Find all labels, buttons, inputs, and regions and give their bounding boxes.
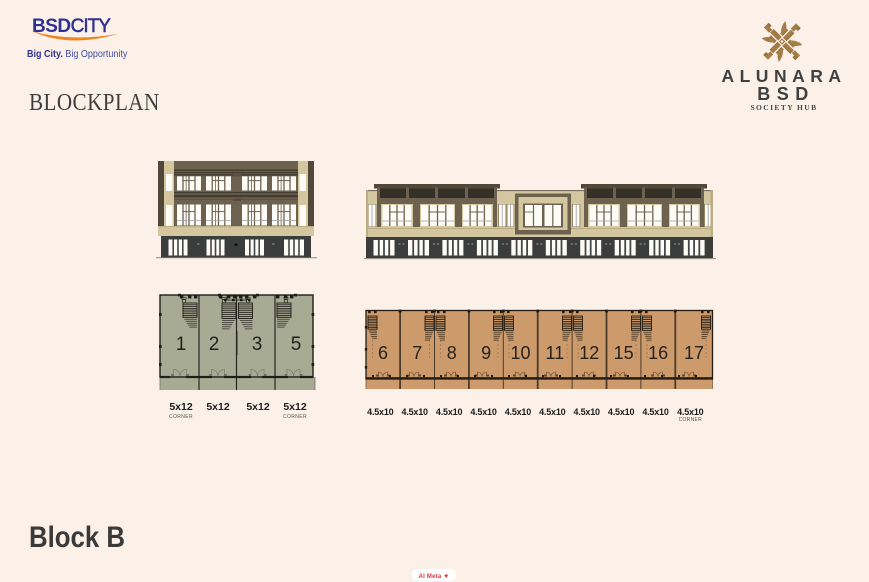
svg-text:9: 9 (481, 343, 491, 363)
svg-text:6: 6 (378, 343, 388, 363)
svg-text:2: 2 (209, 334, 220, 355)
svg-text:11: 11 (546, 343, 565, 363)
svg-text:8: 8 (447, 343, 457, 363)
svg-text:12: 12 (579, 343, 599, 363)
svg-text:17: 17 (684, 343, 704, 363)
svg-text:1: 1 (176, 334, 187, 355)
svg-text:16: 16 (648, 343, 668, 363)
svg-text:10: 10 (510, 343, 530, 363)
svg-text:5: 5 (291, 334, 302, 355)
svg-text:7: 7 (412, 343, 422, 363)
svg-text:3: 3 (252, 334, 263, 355)
svg-text:15: 15 (614, 343, 634, 363)
